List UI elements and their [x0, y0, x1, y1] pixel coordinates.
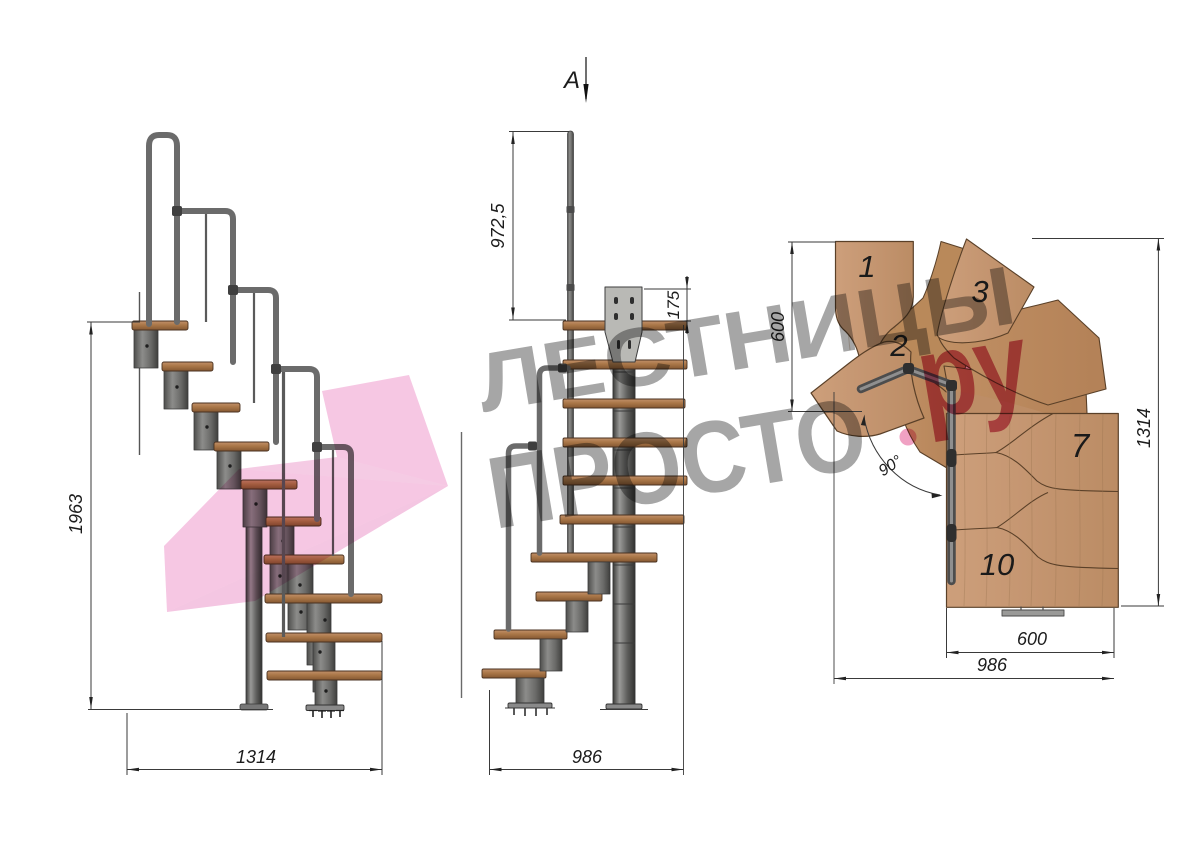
svg-text:986: 986 [977, 655, 1008, 675]
svg-text:A: A [562, 67, 580, 94]
svg-text:1314: 1314 [1134, 408, 1154, 448]
svg-text:600: 600 [1017, 629, 1047, 649]
svg-text:986: 986 [572, 747, 603, 767]
svg-text:1314: 1314 [236, 747, 276, 767]
svg-text:1963: 1963 [66, 494, 86, 534]
svg-text:ру: ру [908, 296, 1038, 444]
svg-text:10: 10 [980, 547, 1014, 582]
svg-text:972,5: 972,5 [488, 202, 508, 248]
svg-text:7: 7 [1071, 427, 1091, 464]
